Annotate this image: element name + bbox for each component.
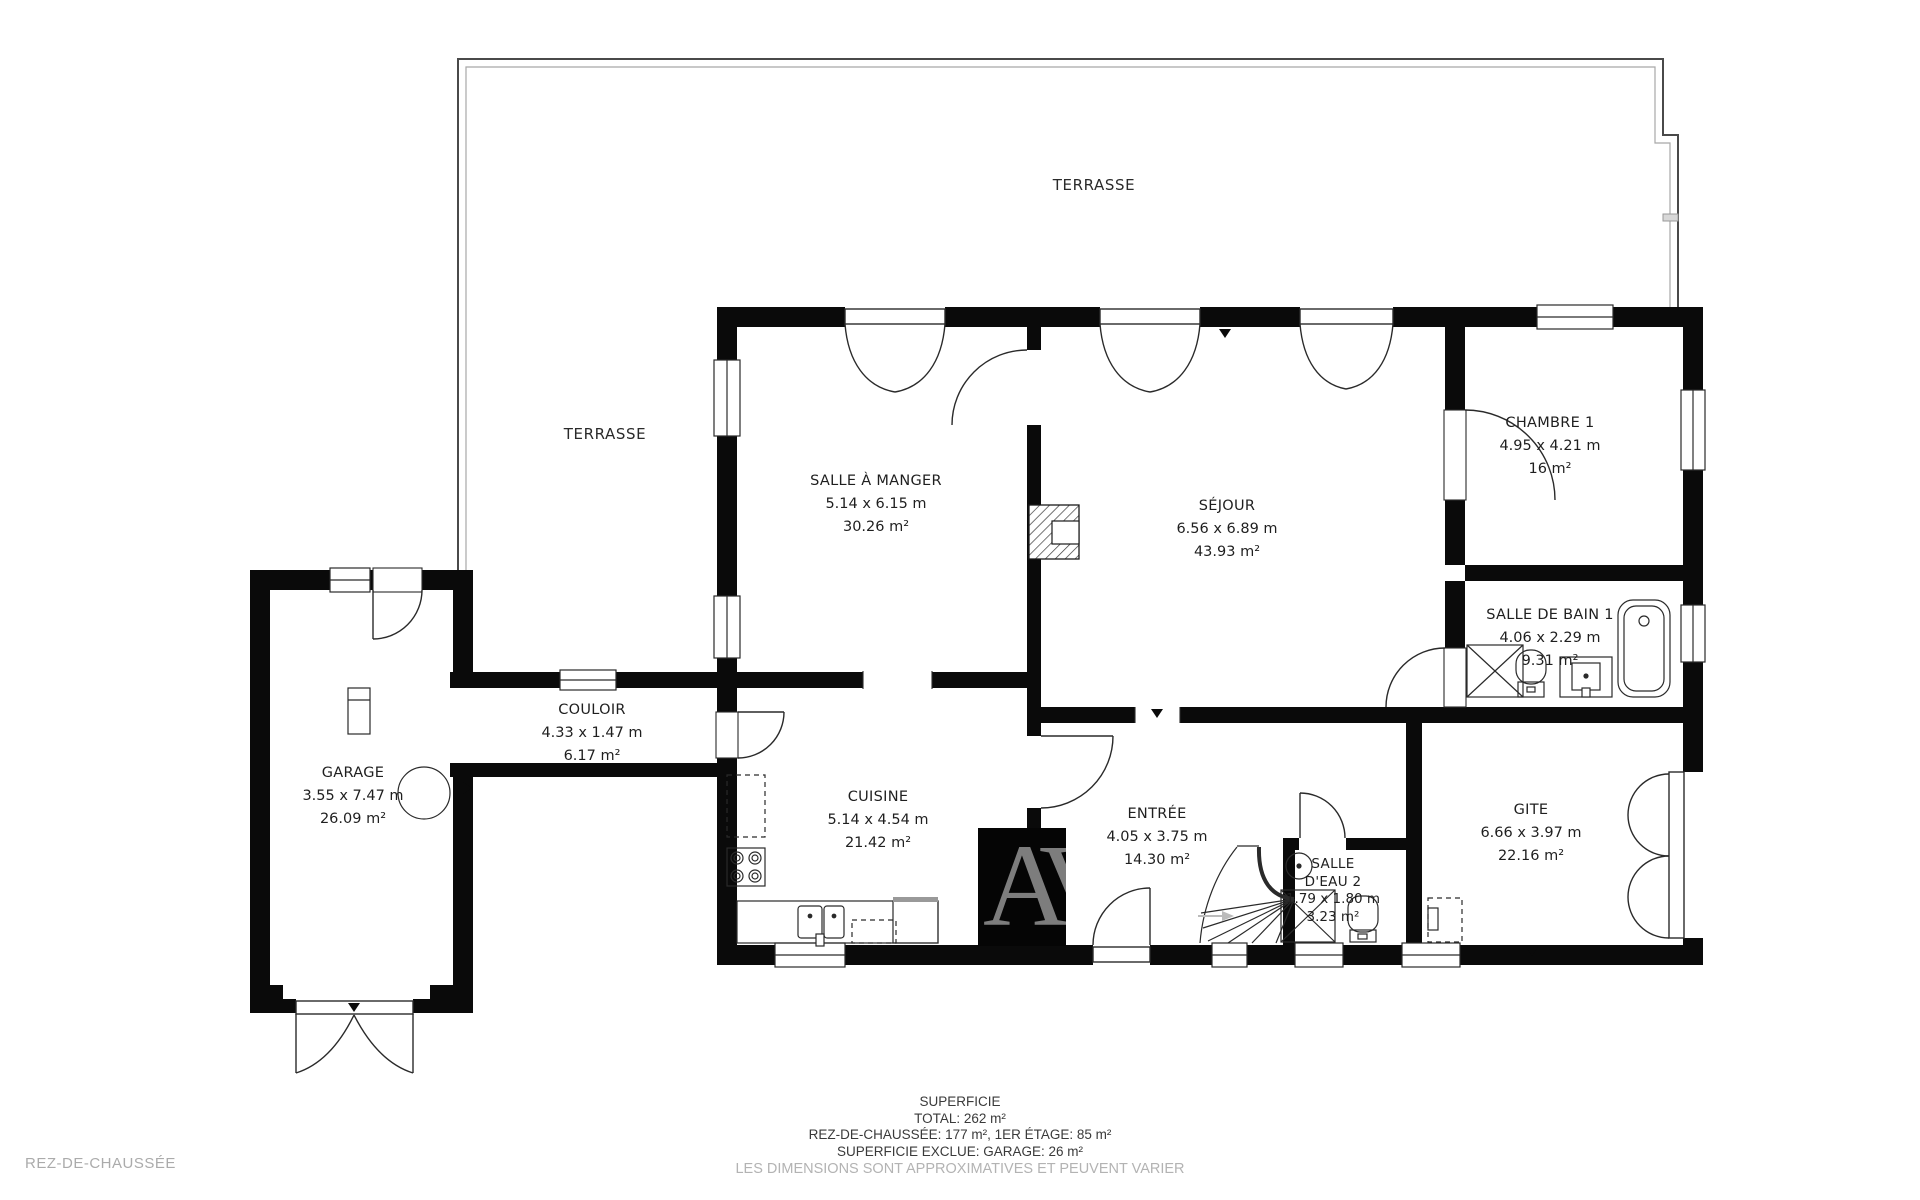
railing-gate-marker: [1663, 214, 1678, 221]
utility-panel: [348, 688, 370, 734]
room-label-salle-d-eau-2: SALLE D'EAU 2 1.79 x 1.80 m 3.23 m²: [1286, 856, 1380, 926]
dishwasher: [852, 920, 896, 943]
room-label-salle-a-manger: SALLE À MANGER 5.14 x 6.15 m 30.26 m²: [810, 470, 942, 539]
summary-title: SUPERFICIE: [0, 1094, 1920, 1111]
kitchen-counter: [737, 901, 938, 943]
door-couloir-cuisine: [716, 712, 784, 758]
window-cuisine-bottom: [775, 943, 845, 967]
garage-main-door: [296, 1001, 413, 1073]
room-label-couloir: COULOIR 4.33 x 1.47 m 6.17 m²: [541, 699, 642, 768]
french-door-dining: [845, 309, 945, 392]
fridge: [893, 897, 938, 943]
room-label-chambre-1: CHAMBRE 1 4.95 x 4.21 m 16 m²: [1499, 412, 1600, 481]
summary-floors: REZ-DE-CHAUSSÉE: 177 m², 1ER ÉTAGE: 85 m…: [0, 1127, 1920, 1144]
window-dining-left-2: [714, 596, 740, 658]
water-heater: [398, 767, 450, 819]
opening-dining-cuisine: [863, 671, 932, 689]
summary-excluded: SUPERFICIE EXCLUE: GARAGE: 26 m²: [0, 1144, 1920, 1161]
window-couloir-top: [560, 670, 616, 690]
window-chambre-top: [1537, 305, 1613, 329]
room-label-cuisine: CUISINE 5.14 x 4.54 m 21.42 m²: [827, 786, 928, 855]
room-label-entree: ENTRÉE 4.05 x 3.75 m 14.30 m²: [1106, 803, 1207, 872]
window-sde2-bottom: [1295, 943, 1343, 967]
gite-closet: [1428, 898, 1462, 942]
room-label-garage: GARAGE 3.55 x 7.47 m 26.09 m²: [302, 762, 403, 831]
window-dining-left-1: [714, 360, 740, 436]
spiral-stairs: [1198, 846, 1294, 943]
french-door-sejour-2: [1300, 309, 1393, 389]
watermark-box: AV: [978, 828, 1066, 946]
terrasse-top-label: TERRASSE: [1053, 176, 1135, 194]
room-label-gite: GITE 6.66 x 3.97 m 22.16 m²: [1480, 799, 1581, 868]
floorplan-drawing: [0, 0, 1920, 1200]
terrasse-left-label: TERRASSE: [564, 425, 646, 443]
door-sdb: [1386, 648, 1466, 707]
window-entree-bottom: [1212, 943, 1247, 967]
room-label-sejour: SÉJOUR 6.56 x 6.89 m 43.93 m²: [1176, 495, 1277, 564]
kitchen-sink: [798, 906, 844, 946]
front-door: [1093, 888, 1150, 962]
chimney: [1029, 505, 1079, 559]
bathtub: [1618, 600, 1670, 697]
window-sdb-right: [1681, 605, 1705, 662]
gite-heater: [1428, 908, 1438, 930]
window-gite-bottom: [1402, 943, 1460, 967]
surface-summary: SUPERFICIE TOTAL: 262 m² REZ-DE-CHAUSSÉE…: [0, 1094, 1920, 1178]
door-garage-top: [373, 568, 422, 639]
french-door-gite: [1628, 772, 1684, 938]
watermark-letters: AV: [983, 834, 1066, 938]
room-label-salle-de-bain-1: SALLE DE BAIN 1 4.06 x 2.29 m 9.31 m²: [1486, 604, 1614, 673]
summary-total: TOTAL: 262 m²: [0, 1111, 1920, 1128]
summary-disclaimer: LES DIMENSIONS SONT APPROXIMATIVES ET PE…: [0, 1161, 1920, 1178]
floor-name-tag: REZ-DE-CHAUSSÉE: [25, 1155, 176, 1172]
window-garage-top: [330, 568, 370, 592]
door-sde2: [1299, 793, 1346, 851]
door-cuisine-entree: [1026, 736, 1113, 808]
door-sejour-dining: [952, 350, 1042, 425]
window-chambre-right: [1681, 390, 1705, 470]
floorplan-page: AV TERRASSE TERRASSE SALLE À MANGER 5.14…: [0, 0, 1920, 1200]
french-door-sejour-1: [1100, 309, 1200, 392]
